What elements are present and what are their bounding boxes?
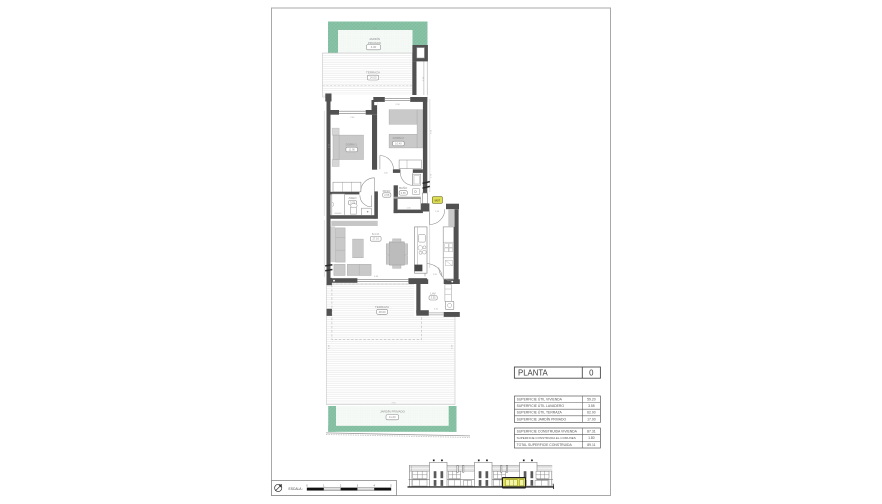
svg-text:0: 0 [589,369,594,378]
svg-text:1.80: 1.80 [588,436,595,440]
svg-text:TERRAZA: TERRAZA [366,71,380,75]
svg-text:S.C.K: S.C.K [372,232,380,236]
svg-text:2.55: 2.55 [384,193,390,197]
svg-text:27.10: 27.10 [372,237,379,241]
svg-text:PRIVADO: PRIVADO [368,41,382,45]
svg-text:48.00: 48.00 [379,310,386,314]
svg-text:DORM 1: DORM 1 [346,142,358,146]
svg-text:62.00: 62.00 [587,411,596,415]
svg-text:14.00: 14.00 [370,76,377,80]
svg-text:TERRAZA: TERRAZA [375,305,389,309]
svg-text:TOTAL SUPERFICIE CONSTRUIDA: TOTAL SUPERFICIE CONSTRUIDA [517,443,573,447]
svg-text:3.55: 3.55 [431,296,437,300]
svg-text:3.55: 3.55 [588,404,595,408]
svg-text:3.55: 3.55 [401,191,407,195]
svg-text:59.20: 59.20 [587,398,596,402]
svg-text:11.90: 11.90 [349,147,356,151]
svg-text:SUPERFICIE ÚTIL LAVADERO: SUPERFICIE ÚTIL LAVADERO [517,403,565,408]
svg-text:M07: M07 [435,199,441,203]
svg-text:LAV: LAV [430,291,435,295]
svg-text:10.40: 10.40 [395,141,402,145]
svg-text:SUPERFICIE JARDÍN PRIVADO: SUPERFICIE JARDÍN PRIVADO [517,417,567,421]
svg-text:17.00: 17.00 [587,417,596,421]
svg-text:89.11: 89.11 [587,443,595,447]
svg-text:87.31: 87.31 [587,430,596,434]
svg-text:SUPERFICIE ÚTIL TERRAZA: SUPERFICIE ÚTIL TERRAZA [517,410,563,415]
svg-text:SUPERFICIE CONSTRUIDA EL.COMUN: SUPERFICIE CONSTRUIDA EL.COMUNES [517,436,576,440]
svg-text:ASEO: ASEO [348,196,357,200]
svg-text:PLANTA: PLANTA [518,368,549,377]
svg-text:SUPERFICIE CONSTRUIDA VIVIENDA: SUPERFICIE CONSTRUIDA VIVIENDA [517,430,578,434]
svg-text:BAÑO: BAÑO [399,185,408,190]
svg-text:JARDÍN PRIVADO: JARDÍN PRIVADO [380,409,406,413]
svg-text:ESCALA :: ESCALA : [289,487,304,491]
svg-text:DORM 2: DORM 2 [393,136,405,140]
svg-text:4.00: 4.00 [371,45,377,49]
svg-text:PASO: PASO [383,189,392,193]
svg-text:SUPERFICIE ÚTIL VIVIENDA: SUPERFICIE ÚTIL VIVIENDA [517,397,563,402]
svg-text:11.00: 11.00 [389,415,396,419]
